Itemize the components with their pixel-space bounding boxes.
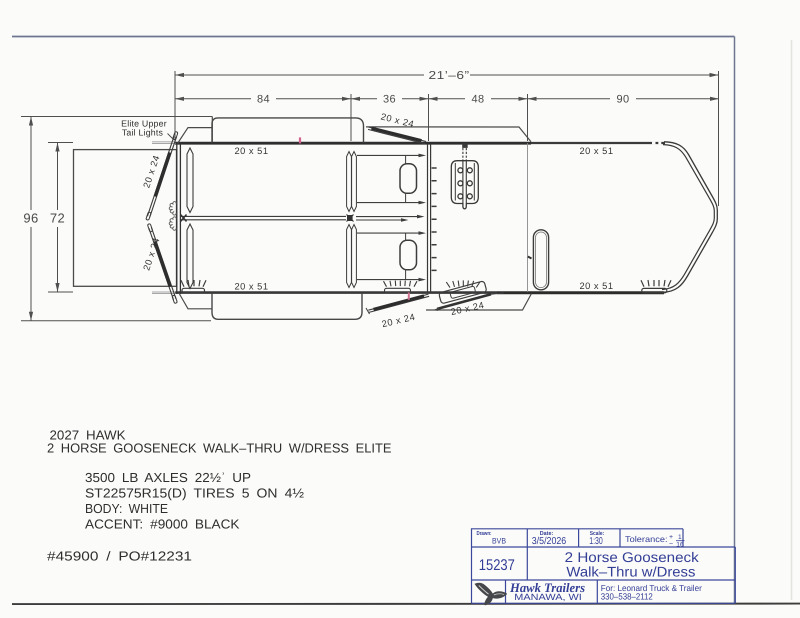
svg-text:330–538–2112: 330–538–2112	[601, 592, 653, 602]
svg-text:3/5/2026: 3/5/2026	[532, 536, 567, 547]
svg-text:#45900 / PO#12231: #45900 / PO#12231	[47, 548, 192, 563]
svg-text:MANAWA, WI: MANAWA, WI	[514, 592, 582, 602]
svg-text:20 x 51: 20 x 51	[235, 281, 269, 291]
svg-text:ACCENT: #9000 BLACK: ACCENT: #9000 BLACK	[85, 516, 240, 531]
svg-text:96: 96	[23, 210, 38, 225]
svg-text:20 x 51: 20 x 51	[580, 281, 614, 291]
svg-text:15237: 15237	[479, 557, 515, 574]
svg-text:+: +	[669, 534, 673, 541]
svg-text:48: 48	[471, 94, 484, 106]
svg-text:BVB: BVB	[492, 536, 506, 545]
svg-text:16: 16	[676, 542, 684, 549]
svg-text:20 x 51: 20 x 51	[580, 146, 614, 156]
svg-text:21’–6”: 21’–6”	[429, 70, 470, 82]
svg-text:−: −	[669, 541, 673, 548]
svg-text:Tolerance:: Tolerance:	[625, 534, 668, 544]
svg-text:Drawn:: Drawn:	[477, 531, 492, 537]
svg-text:90: 90	[616, 94, 629, 106]
svg-text:2 HORSE GOOSENECK WALK–THRU W/: 2 HORSE GOOSENECK WALK–THRU W/DRESS ELIT…	[47, 440, 392, 455]
svg-text:ST22575R15(D) TIRES 5 ON 4½: ST22575R15(D) TIRES 5 ON 4½	[85, 485, 304, 500]
svg-text:BODY: WHITE: BODY: WHITE	[85, 501, 168, 516]
svg-text:1: 1	[678, 534, 682, 541]
svg-text:20 x 51: 20 x 51	[235, 146, 269, 156]
svg-text:2 Horse Gooseneck: 2 Horse Gooseneck	[565, 549, 700, 565]
svg-text:72: 72	[50, 210, 65, 225]
svg-text:1:30: 1:30	[589, 536, 603, 547]
svg-text:84: 84	[257, 94, 270, 106]
svg-text:Walk–Thru w/Dress: Walk–Thru w/Dress	[566, 564, 695, 580]
svg-text:36: 36	[383, 94, 396, 106]
svg-text:Tail Lights: Tail Lights	[122, 128, 164, 138]
svg-text:3500 LB AXLES 22½ʾ UP: 3500 LB AXLES 22½ʾ UP	[85, 470, 251, 485]
